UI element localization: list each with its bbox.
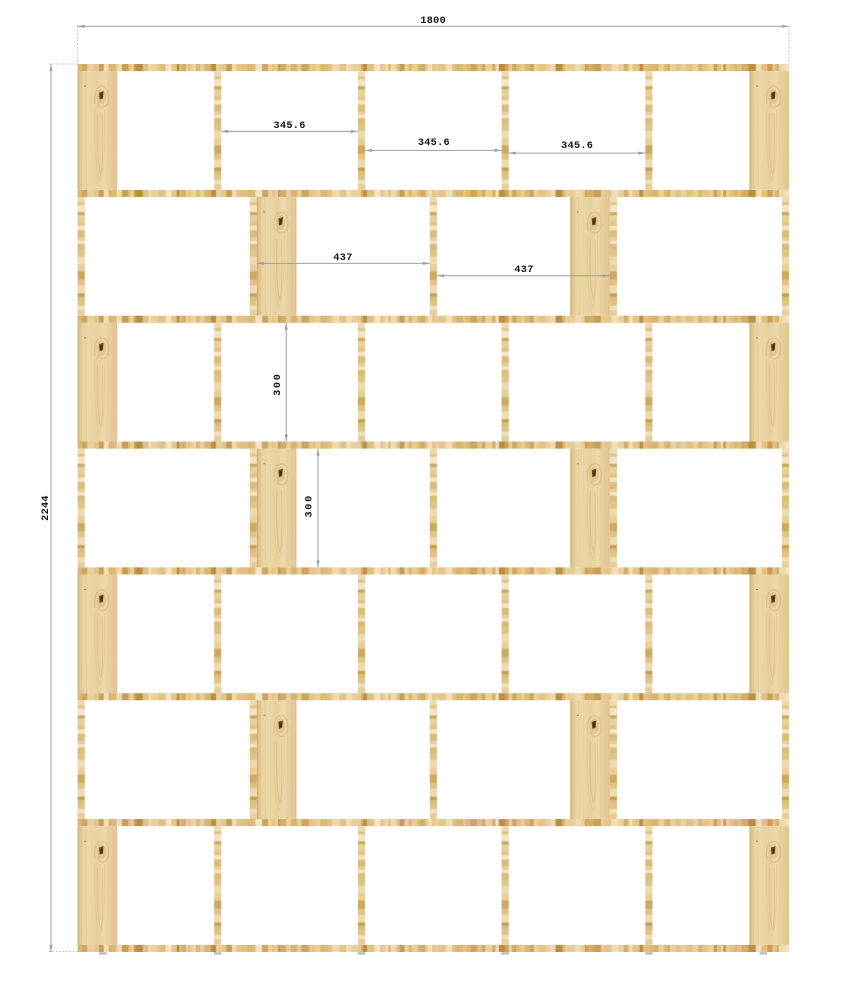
svg-text:2244: 2244: [41, 495, 52, 521]
svg-text:345.6: 345.6: [274, 121, 306, 132]
svg-text:1800: 1800: [420, 16, 446, 27]
svg-text:437: 437: [514, 265, 533, 276]
svg-text:300: 300: [305, 494, 316, 517]
svg-text:437: 437: [333, 253, 352, 264]
svg-text:345.6: 345.6: [418, 138, 450, 149]
svg-text:345.6: 345.6: [561, 141, 593, 152]
svg-text:300: 300: [273, 372, 284, 395]
